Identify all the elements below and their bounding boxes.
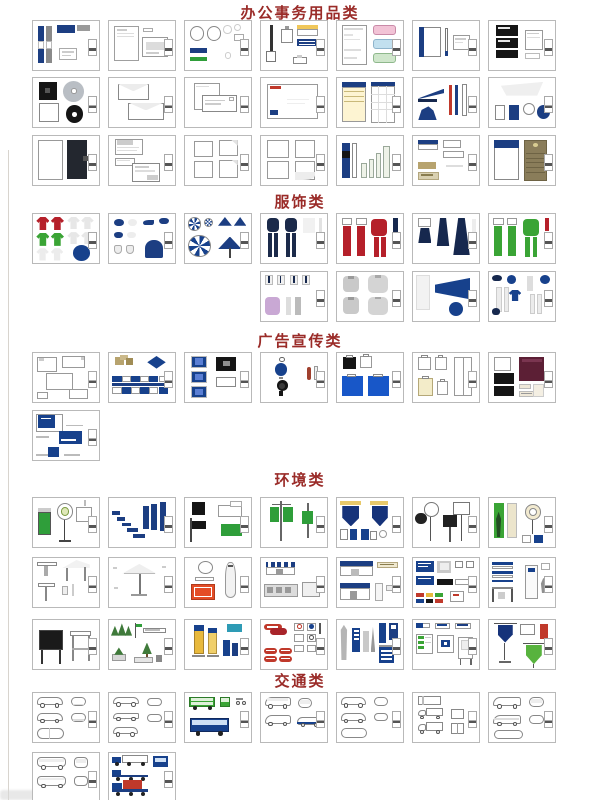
template-thumb-shopping-bags[interactable] bbox=[412, 352, 480, 403]
thumb-shape bbox=[352, 143, 357, 178]
thumb-shape bbox=[131, 717, 136, 721]
template-thumb-folder-and-pen[interactable] bbox=[412, 20, 480, 71]
thumb-shape bbox=[508, 226, 516, 256]
thumb-shape bbox=[529, 715, 544, 725]
template-thumb-blocks-and-banner[interactable] bbox=[108, 352, 176, 403]
thumb-shape bbox=[346, 355, 353, 358]
thumb-shape bbox=[147, 356, 165, 369]
template-thumb-desk-stationery[interactable] bbox=[412, 77, 480, 128]
thumb-shape bbox=[61, 439, 76, 441]
thumb-shape bbox=[422, 376, 429, 379]
thumb-shape bbox=[38, 512, 51, 536]
section-title-advertising: 广告宣传类 bbox=[0, 330, 600, 351]
thumb-shape bbox=[225, 52, 232, 58]
page-marker-icon bbox=[164, 154, 173, 171]
template-thumb-flags-and-boards[interactable] bbox=[184, 497, 252, 548]
thumb-shape bbox=[76, 759, 86, 763]
thumb-shape bbox=[223, 640, 230, 657]
template-thumb-storefront-awning[interactable] bbox=[260, 557, 328, 608]
thumb-shape bbox=[71, 88, 77, 93]
thumb-shape bbox=[159, 387, 168, 393]
template-thumb-black-notepads[interactable] bbox=[488, 20, 556, 71]
thumb-shape bbox=[133, 534, 145, 538]
thumb-shape bbox=[229, 248, 230, 258]
thumb-shape bbox=[523, 219, 540, 236]
thumb-shape bbox=[136, 624, 142, 627]
page-marker-icon bbox=[544, 576, 553, 593]
thumb-shape bbox=[344, 34, 353, 36]
template-thumb-fax-forms[interactable] bbox=[108, 135, 176, 186]
thumb-shape bbox=[267, 140, 289, 158]
thumb-shape bbox=[126, 245, 135, 253]
template-thumb-column-banners[interactable] bbox=[488, 497, 556, 548]
thumb-shape bbox=[195, 374, 203, 380]
page-marker-icon bbox=[468, 711, 477, 728]
page-marker-icon bbox=[316, 711, 325, 728]
page-marker-icon bbox=[164, 96, 173, 113]
thumb-shape bbox=[341, 728, 367, 738]
thumb-shape bbox=[509, 290, 522, 302]
thumb-shape bbox=[522, 535, 531, 542]
thumb-shape bbox=[267, 161, 289, 179]
thumb-shape bbox=[420, 730, 424, 734]
page-marker-icon bbox=[544, 371, 553, 388]
thumb-shape bbox=[38, 140, 63, 180]
template-thumb-folded-sheets[interactable] bbox=[184, 135, 252, 186]
thumb-shape bbox=[155, 758, 166, 762]
template-thumb-pole-banners[interactable] bbox=[260, 497, 328, 548]
template-thumb-sedans[interactable] bbox=[108, 692, 176, 743]
thumb-shape bbox=[151, 504, 157, 530]
thumb-shape bbox=[123, 780, 142, 788]
thumb-shape bbox=[299, 41, 315, 42]
thumb-shape bbox=[268, 722, 273, 726]
thumb-shape bbox=[147, 714, 162, 722]
thumb-shape bbox=[370, 531, 377, 540]
template-thumb-canopy-stands[interactable] bbox=[32, 557, 100, 608]
thumb-shape bbox=[270, 86, 281, 88]
thumb-shape bbox=[66, 425, 83, 426]
thumb-shape bbox=[381, 654, 392, 655]
thumb-shape bbox=[344, 719, 349, 723]
thumb-shape bbox=[460, 659, 461, 665]
thumb-shape bbox=[228, 565, 233, 567]
thumb-shape bbox=[131, 376, 140, 382]
thumb-shape bbox=[147, 698, 162, 706]
thumb-shape bbox=[342, 218, 353, 225]
template-thumb-pennant-and-jacket[interactable] bbox=[412, 271, 480, 322]
thumb-shape bbox=[350, 529, 357, 540]
thumb-shape bbox=[67, 232, 80, 244]
thumb-shape bbox=[207, 26, 222, 41]
thumb-shape bbox=[193, 706, 197, 710]
page-marker-icon bbox=[468, 290, 477, 307]
thumb-shape bbox=[525, 237, 530, 258]
template-thumb-letterhead-envelope[interactable] bbox=[108, 20, 176, 71]
thumb-shape bbox=[267, 218, 280, 232]
template-thumb-hanging-shield-signs[interactable] bbox=[488, 619, 556, 670]
thumb-shape bbox=[270, 110, 279, 114]
page-marker-icon bbox=[88, 771, 97, 788]
template-thumb-suv-cars[interactable] bbox=[336, 692, 404, 743]
thumb-shape bbox=[38, 41, 44, 50]
template-thumb-estate-cars[interactable] bbox=[32, 692, 100, 743]
page-marker-icon bbox=[316, 516, 325, 533]
page-marker-icon bbox=[392, 576, 401, 593]
thumb-shape bbox=[492, 562, 512, 565]
template-thumb-large-envelopes[interactable] bbox=[488, 135, 556, 186]
template-thumb-floor-directory[interactable] bbox=[336, 619, 404, 670]
thumb-shape bbox=[371, 219, 387, 236]
thumb-shape bbox=[347, 374, 356, 377]
template-thumb-grey-jackets[interactable] bbox=[336, 271, 404, 322]
thumb-shape bbox=[156, 655, 162, 662]
thumb-shape bbox=[348, 276, 354, 279]
thumb-shape bbox=[198, 561, 213, 574]
template-thumb-t-shirts[interactable] bbox=[32, 213, 100, 264]
thumb-shape bbox=[343, 226, 351, 256]
template-thumb-file-spines[interactable] bbox=[336, 135, 404, 186]
thumb-shape bbox=[285, 587, 291, 593]
template-thumb-badge-and-flag[interactable] bbox=[260, 20, 328, 71]
thumb-shape bbox=[77, 25, 90, 31]
thumb-shape bbox=[283, 507, 292, 522]
thumb-shape bbox=[381, 650, 392, 651]
thumb-shape bbox=[205, 103, 221, 104]
template-thumb-womens-wear[interactable] bbox=[412, 213, 480, 264]
template-thumb-envelopes[interactable] bbox=[108, 77, 176, 128]
template-thumb-green-work-uniforms[interactable] bbox=[488, 213, 556, 264]
template-thumb-paper-cups[interactable] bbox=[488, 77, 556, 128]
thumb-shape bbox=[46, 41, 52, 50]
thumb-shape bbox=[443, 151, 463, 158]
template-thumb-red-logo-letterhead[interactable] bbox=[260, 77, 328, 128]
thumb-shape bbox=[435, 357, 447, 370]
thumb-shape bbox=[191, 702, 213, 704]
page-marker-icon bbox=[544, 711, 553, 728]
thumb-shape bbox=[342, 506, 359, 527]
thumb-shape bbox=[371, 94, 395, 95]
thumb-shape bbox=[418, 563, 431, 564]
thumb-shape bbox=[72, 584, 74, 596]
template-thumb-keychain-and-watch[interactable] bbox=[260, 352, 328, 403]
thumb-shape bbox=[526, 645, 542, 665]
thumb-shape bbox=[437, 579, 452, 586]
thumb-shape bbox=[230, 501, 243, 507]
page-marker-icon bbox=[392, 371, 401, 388]
page-marker-icon bbox=[316, 638, 325, 655]
thumb-shape bbox=[113, 567, 117, 569]
thumb-shape bbox=[59, 431, 82, 444]
thumb-shape bbox=[62, 55, 71, 56]
thumb-shape bbox=[426, 593, 434, 597]
thumb-shape bbox=[443, 140, 461, 148]
thumb-shape bbox=[276, 569, 283, 574]
thumb-shape bbox=[131, 387, 140, 393]
template-thumb-cd-discs[interactable] bbox=[184, 20, 252, 71]
thumb-shape bbox=[270, 25, 273, 52]
thumb-shape bbox=[540, 624, 549, 639]
thumb-shape bbox=[513, 722, 518, 726]
thumb-shape bbox=[266, 658, 275, 659]
thumb-shape bbox=[449, 527, 450, 542]
thumb-shape bbox=[223, 361, 230, 366]
template-thumb-navy-trucks[interactable] bbox=[108, 752, 176, 800]
thumb-shape bbox=[522, 359, 542, 362]
template-thumb-red-work-uniforms[interactable] bbox=[336, 213, 404, 264]
template-thumb-envelope-letterhead[interactable] bbox=[184, 77, 252, 128]
thumb-shape bbox=[44, 566, 47, 575]
template-thumb-traffic-plates[interactable] bbox=[260, 619, 328, 670]
thumb-shape bbox=[117, 160, 130, 161]
thumb-shape bbox=[40, 703, 45, 707]
thumb-shape bbox=[350, 591, 358, 600]
thumb-shape bbox=[192, 655, 205, 657]
thumb-shape bbox=[492, 571, 512, 574]
thumb-shape bbox=[270, 628, 288, 634]
template-thumb-vertical-banners[interactable] bbox=[184, 619, 252, 670]
thumb-shape bbox=[190, 48, 207, 52]
thumb-shape bbox=[496, 50, 518, 58]
template-thumb-coaches[interactable] bbox=[32, 752, 100, 800]
template-thumb-info-panels[interactable] bbox=[412, 619, 480, 670]
thumb-shape bbox=[114, 647, 123, 654]
thumb-shape bbox=[234, 24, 241, 31]
thumb-shape bbox=[494, 718, 519, 719]
template-thumb-minibuses[interactable] bbox=[260, 692, 328, 743]
thumb-shape bbox=[281, 650, 290, 651]
thumb-shape bbox=[69, 389, 88, 399]
template-thumb-sticky-note-pads[interactable] bbox=[336, 20, 404, 71]
template-thumb-ad-layouts[interactable] bbox=[32, 352, 100, 403]
thumb-shape bbox=[236, 698, 243, 700]
template-thumb-box-trucks[interactable] bbox=[412, 692, 480, 743]
thumb-shape bbox=[425, 637, 431, 638]
thumb-shape bbox=[525, 53, 541, 59]
thumb-shape bbox=[39, 630, 63, 651]
template-thumb-caps[interactable] bbox=[108, 213, 176, 264]
page-marker-icon bbox=[544, 154, 553, 171]
thumb-shape bbox=[418, 566, 427, 567]
thumb-shape bbox=[358, 703, 363, 707]
thumb-shape bbox=[368, 376, 389, 397]
thumb-shape bbox=[112, 376, 121, 382]
thumb-shape bbox=[142, 643, 152, 655]
thumb-shape bbox=[287, 99, 308, 100]
page-marker-icon bbox=[544, 232, 553, 249]
thumb-shape bbox=[131, 702, 136, 706]
page-marker-icon bbox=[468, 516, 477, 533]
page-marker-icon bbox=[240, 371, 249, 388]
thumb-shape bbox=[418, 89, 444, 99]
thumb-shape bbox=[437, 624, 446, 625]
page-marker-icon bbox=[316, 96, 325, 113]
template-thumb-entrance-mat-pylon[interactable] bbox=[184, 557, 252, 608]
thumb-shape bbox=[416, 593, 424, 597]
thumb-shape bbox=[275, 363, 288, 376]
thumb-shape bbox=[511, 589, 513, 602]
thumb-shape bbox=[527, 276, 533, 291]
template-thumb-uniform-accessories[interactable] bbox=[260, 271, 328, 322]
thumb-shape bbox=[358, 719, 363, 723]
thumb-shape bbox=[294, 634, 304, 642]
page-marker-icon bbox=[88, 429, 97, 446]
thumb-shape bbox=[425, 642, 431, 643]
thumb-shape bbox=[526, 172, 545, 173]
thumb-shape bbox=[49, 728, 50, 739]
page-marker-icon bbox=[88, 371, 97, 388]
page-marker-icon bbox=[468, 39, 477, 56]
thumb-shape bbox=[117, 150, 137, 151]
thumb-shape bbox=[493, 218, 504, 225]
template-thumb-station-signs[interactable] bbox=[32, 497, 100, 548]
thumb-shape bbox=[378, 86, 379, 123]
template-thumb-light-boxes[interactable] bbox=[184, 352, 252, 403]
thumb-shape bbox=[39, 103, 59, 123]
thumb-shape bbox=[504, 643, 505, 661]
page-marker-icon bbox=[544, 638, 553, 655]
thumb-shape bbox=[492, 566, 512, 569]
template-thumb-shop-fascia[interactable] bbox=[336, 557, 404, 608]
thumb-shape bbox=[194, 141, 214, 157]
thumb-shape bbox=[295, 297, 300, 316]
thumb-shape bbox=[453, 502, 471, 515]
thumb-shape bbox=[81, 217, 94, 229]
thumb-shape bbox=[135, 166, 150, 168]
thumb-shape bbox=[449, 302, 463, 316]
template-thumb-sign-system[interactable] bbox=[412, 557, 480, 608]
thumb-shape bbox=[41, 650, 43, 664]
thumb-shape bbox=[416, 599, 424, 603]
template-thumb-cd-cases[interactable] bbox=[32, 77, 100, 128]
thumb-shape bbox=[285, 218, 298, 232]
thumb-shape bbox=[218, 731, 223, 735]
template-thumb-stepped-signboards[interactable] bbox=[108, 497, 176, 548]
thumb-shape bbox=[112, 654, 126, 660]
thumb-shape bbox=[369, 159, 374, 179]
thumb-shape bbox=[507, 503, 516, 538]
thumb-shape bbox=[340, 501, 360, 505]
page-marker-icon bbox=[240, 576, 249, 593]
template-thumb-directory-and-gate[interactable] bbox=[488, 557, 556, 608]
thumb-shape bbox=[195, 358, 203, 364]
thumb-shape bbox=[84, 500, 86, 506]
thumb-shape bbox=[418, 106, 436, 120]
thumb-shape bbox=[36, 436, 49, 437]
thumb-shape bbox=[526, 162, 545, 163]
thumb-shape bbox=[116, 702, 121, 706]
thumb-shape bbox=[191, 698, 213, 701]
thumb-shape bbox=[418, 641, 423, 644]
page-marker-icon bbox=[88, 711, 97, 728]
template-thumb-poster-boards[interactable] bbox=[32, 410, 100, 461]
page-marker-icon bbox=[316, 290, 325, 307]
template-thumb-landscaping[interactable] bbox=[108, 619, 176, 670]
thumb-shape bbox=[195, 389, 203, 395]
page-marker-icon bbox=[164, 771, 173, 788]
page-marker-icon bbox=[164, 711, 173, 728]
thumb-shape bbox=[111, 626, 119, 636]
template-thumb-notebook-set[interactable] bbox=[32, 135, 100, 186]
section-title-transport: 交通类 bbox=[0, 670, 600, 691]
thumb-shape bbox=[192, 502, 205, 515]
thumb-shape bbox=[444, 642, 447, 645]
template-thumb-gift-bags-blue[interactable] bbox=[336, 352, 404, 403]
thumb-shape bbox=[112, 383, 167, 386]
template-thumb-sportswear[interactable] bbox=[488, 271, 556, 322]
template-thumb-vans[interactable] bbox=[488, 692, 556, 743]
thumb-shape bbox=[55, 703, 60, 707]
thumb-shape bbox=[190, 57, 207, 61]
thumb-shape bbox=[435, 599, 443, 603]
page-marker-icon bbox=[544, 39, 553, 56]
thumb-shape bbox=[192, 720, 226, 725]
page-marker-icon bbox=[88, 39, 97, 56]
thumb-shape bbox=[418, 99, 438, 102]
thumb-shape bbox=[344, 101, 364, 102]
thumb-shape bbox=[529, 508, 537, 516]
thumb-shape bbox=[498, 592, 505, 599]
thumb-shape bbox=[297, 55, 302, 57]
thumb-shape bbox=[114, 245, 123, 253]
template-thumb-notice-boards[interactable] bbox=[32, 619, 100, 670]
template-thumb-hanging-pennants[interactable] bbox=[336, 497, 404, 548]
thumb-shape bbox=[462, 84, 467, 116]
thumb-shape bbox=[279, 377, 283, 380]
thumb-shape bbox=[383, 146, 390, 178]
thumb-shape bbox=[463, 357, 464, 396]
thumb-shape bbox=[363, 354, 368, 356]
template-thumb-umbrellas[interactable] bbox=[184, 213, 252, 264]
template-thumb-round-signs[interactable] bbox=[412, 497, 480, 548]
thumb-shape bbox=[492, 580, 512, 583]
template-thumb-dark-suits[interactable] bbox=[260, 213, 328, 264]
thumb-shape bbox=[418, 144, 438, 150]
thumb-shape bbox=[37, 728, 64, 739]
template-thumb-parasol[interactable] bbox=[108, 557, 176, 608]
page-marker-icon bbox=[392, 711, 401, 728]
thumb-shape bbox=[117, 36, 134, 37]
thumb-shape bbox=[497, 704, 502, 708]
thumb-shape bbox=[143, 506, 149, 530]
thumb-shape bbox=[117, 140, 133, 144]
thumb-shape bbox=[354, 634, 359, 635]
thumb-shape bbox=[141, 792, 145, 796]
thumb-shape bbox=[272, 504, 291, 505]
thumb-shape bbox=[426, 708, 443, 716]
template-thumb-binders[interactable] bbox=[32, 20, 100, 71]
thumb-shape bbox=[127, 232, 136, 239]
template-thumb-invoice-forms[interactable] bbox=[336, 77, 404, 128]
thumb-shape bbox=[492, 275, 501, 281]
thumb-shape bbox=[361, 163, 366, 178]
template-thumb-buses[interactable] bbox=[184, 692, 252, 743]
thumb-shape bbox=[279, 391, 284, 396]
thumb-shape bbox=[446, 165, 463, 166]
thumb-shape bbox=[509, 105, 519, 120]
thumb-shape bbox=[122, 387, 131, 393]
thumb-shape bbox=[492, 587, 513, 589]
thumb-shape bbox=[295, 140, 315, 158]
template-thumb-card-set[interactable] bbox=[412, 135, 480, 186]
template-thumb-pocket-folders[interactable] bbox=[260, 135, 328, 186]
thumb-shape bbox=[498, 27, 510, 28]
thumb-shape bbox=[513, 704, 518, 708]
template-thumb-posters[interactable] bbox=[488, 352, 556, 403]
thumb-shape bbox=[45, 88, 50, 93]
page-marker-icon bbox=[316, 371, 325, 388]
thumb-shape bbox=[39, 358, 44, 360]
